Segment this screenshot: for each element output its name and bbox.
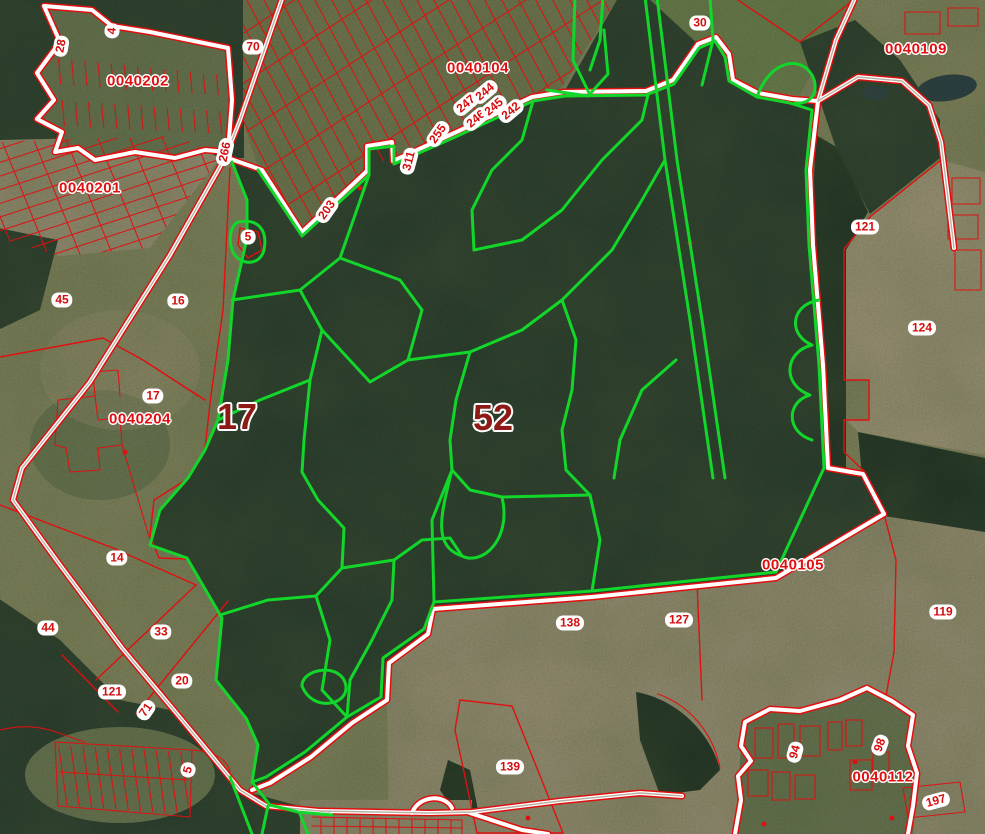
map-layers	[0, 0, 985, 834]
map-canvas[interactable]: 7042800402020040201266520325531124724424…	[0, 0, 985, 834]
satellite-base-layer	[0, 0, 985, 834]
